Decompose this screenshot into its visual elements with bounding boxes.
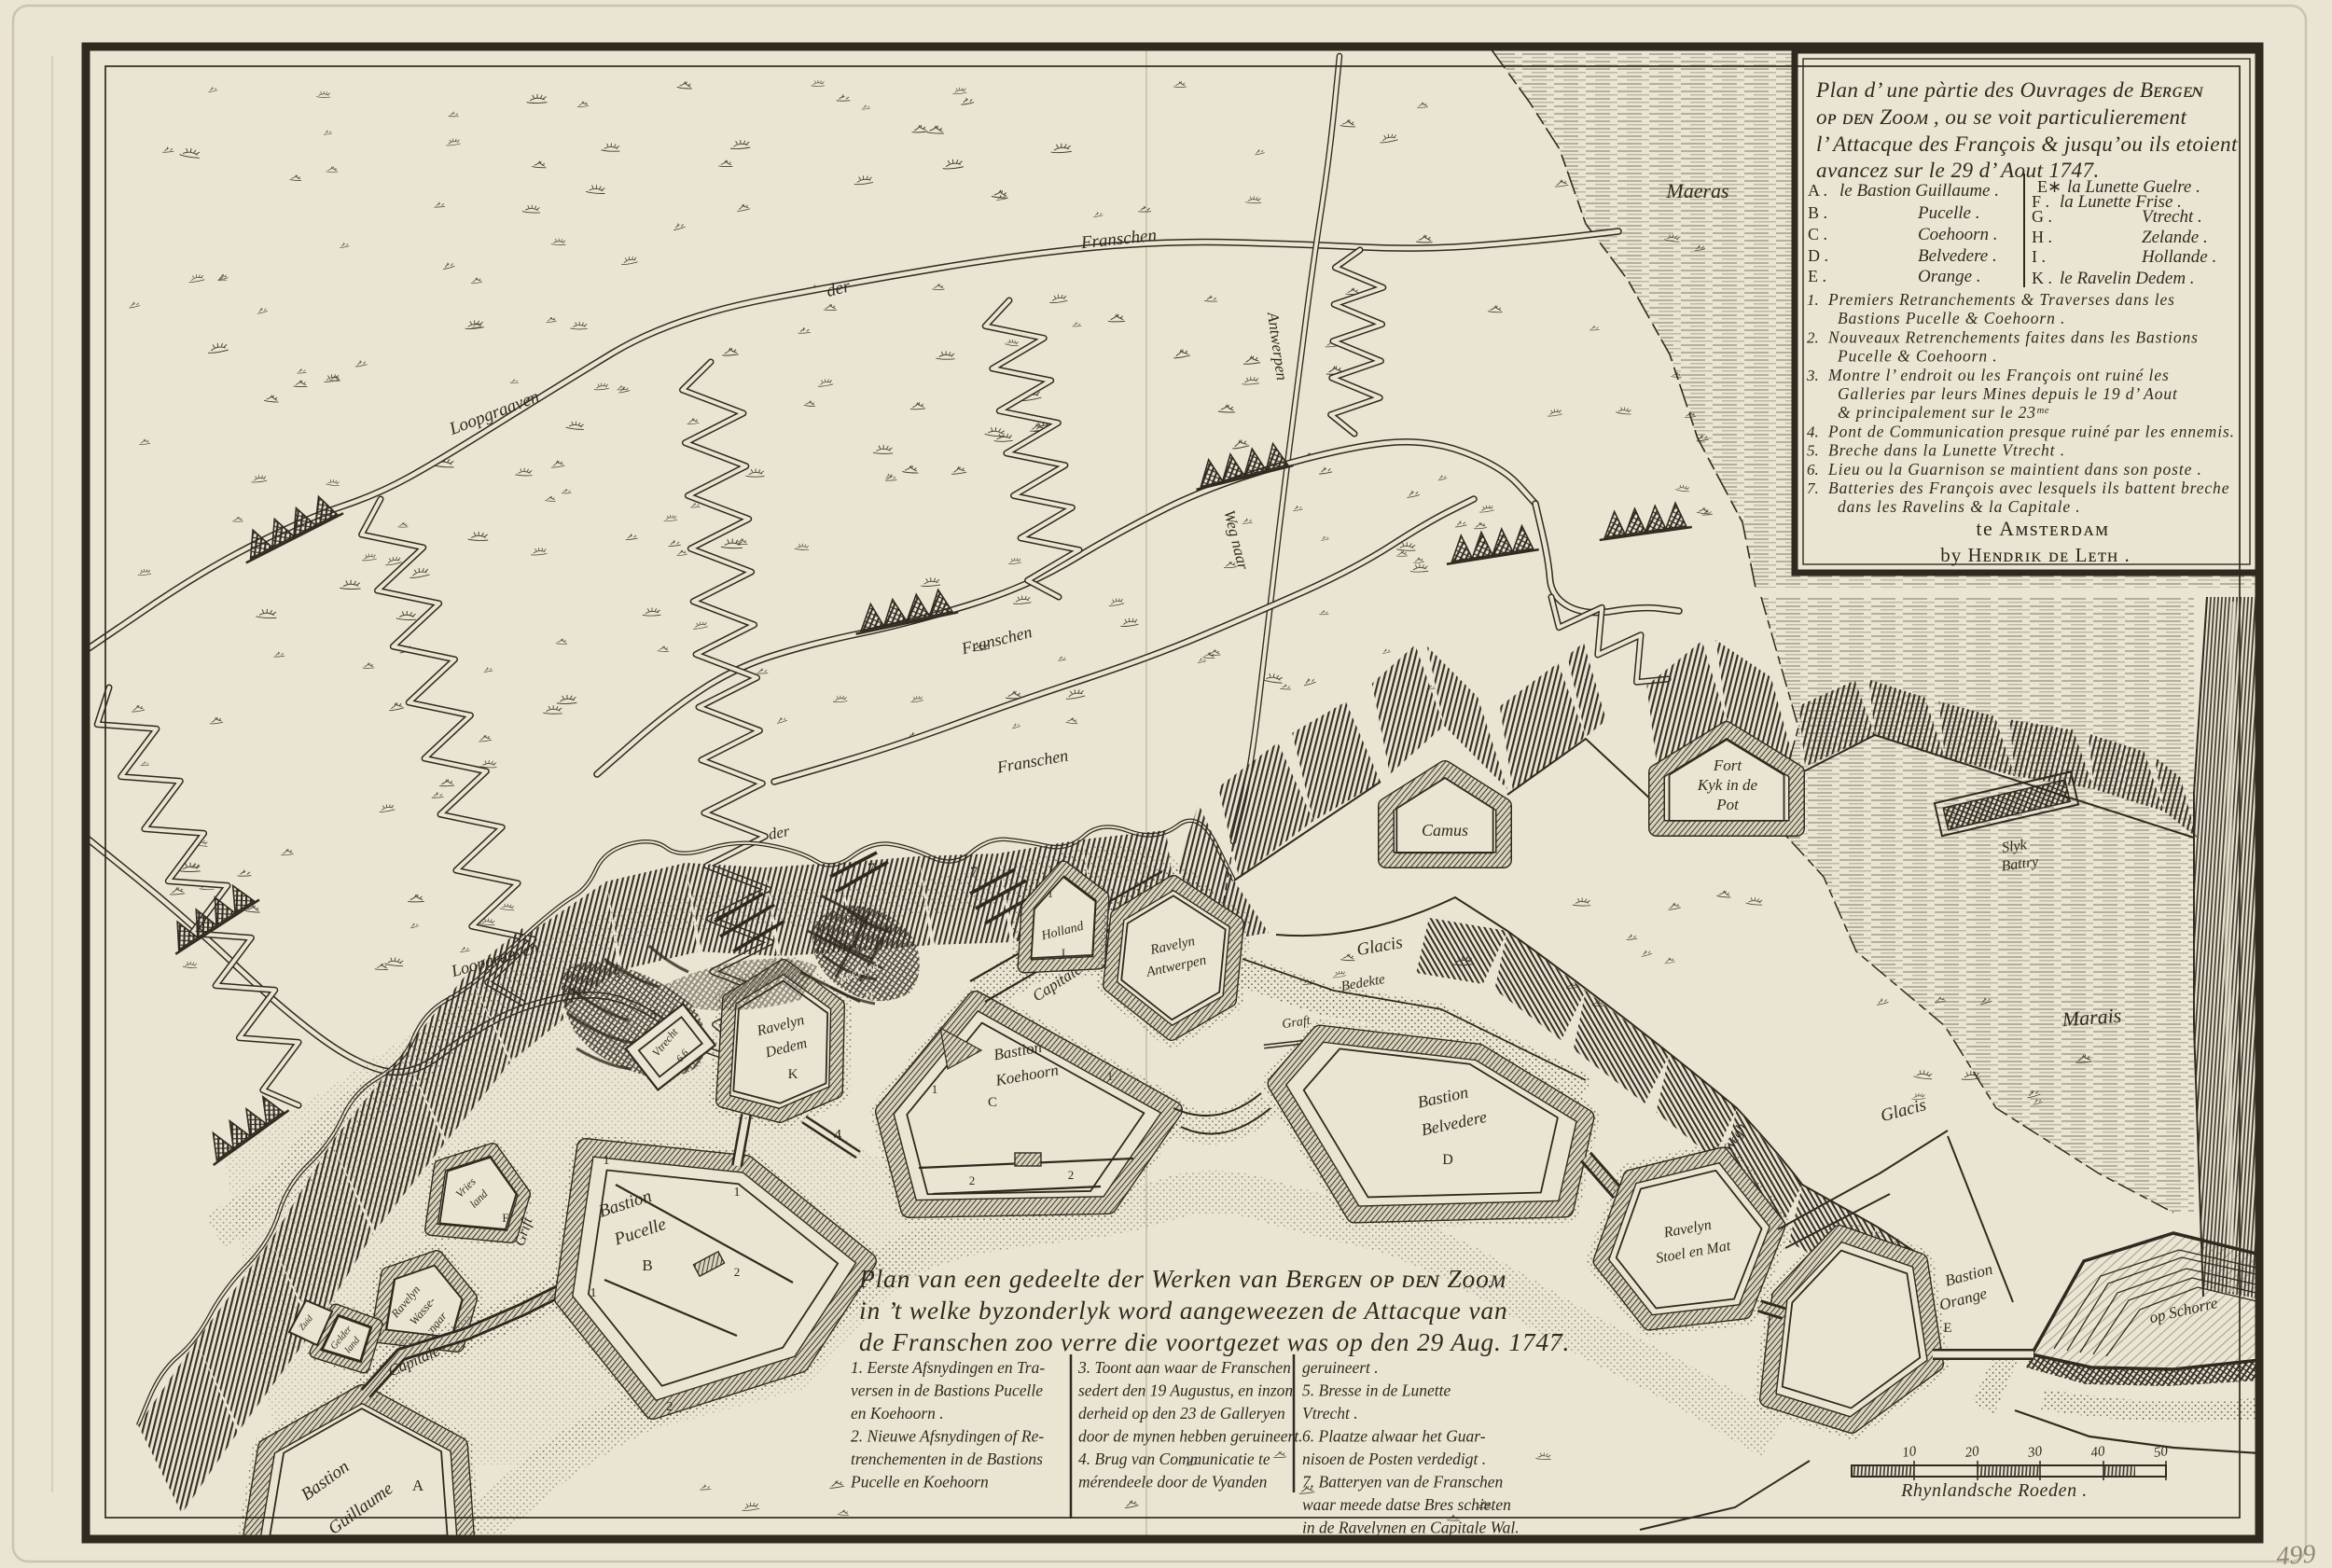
svg-text:10: 10 bbox=[1901, 1444, 1918, 1461]
svg-text:en Koehoorn .: en Koehoorn . bbox=[851, 1404, 944, 1422]
svg-text:Nouveaux Retrenchements faites: Nouveaux Retrenchements faites dans les … bbox=[1827, 327, 2199, 346]
svg-text:Galleries par leurs Mines depu: Galleries par leurs Mines depuis le 19 d… bbox=[1838, 384, 2178, 403]
svg-text:Vtrecht .: Vtrecht . bbox=[1302, 1404, 1358, 1422]
svg-text:6.: 6. bbox=[1807, 461, 1819, 479]
svg-text:Plan d’ une pàrtie des Ouvrage: Plan d’ une pàrtie des Ouvrages de Bᴇʀɢᴇ… bbox=[1815, 78, 2204, 103]
svg-text:Montre l’ endroit ou les Franç: Montre l’ endroit ou les François ont ru… bbox=[1827, 366, 2170, 384]
svg-text:F: F bbox=[502, 1211, 508, 1225]
svg-text:Premiers Retranchements & Trav: Premiers Retranchements & Traverses dans… bbox=[1827, 290, 2175, 309]
svg-text:sedert den 19 Augustus, en inz: sedert den 19 Augustus, en inzon bbox=[1078, 1381, 1293, 1400]
svg-text:2: 2 bbox=[667, 1400, 673, 1414]
svg-text:3. Toont aan waar de Franschen: 3. Toont aan waar de Franschen bbox=[1077, 1358, 1291, 1377]
svg-text:2: 2 bbox=[734, 1265, 741, 1279]
svg-text:A: A bbox=[412, 1477, 424, 1494]
svg-text:geruineert .: geruineert . bbox=[1302, 1358, 1379, 1377]
svg-text:Fort: Fort bbox=[1713, 756, 1743, 774]
svg-text:7. Batteryen van de Franschen: 7. Batteryen van de Franschen bbox=[1302, 1473, 1504, 1492]
svg-text:H .: H . bbox=[2032, 228, 2052, 246]
svg-text:Camus: Camus bbox=[1422, 821, 1468, 840]
svg-text:1: 1 bbox=[604, 1154, 610, 1168]
svg-text:4. Brug van Communicatie te: 4. Brug van Communicatie te bbox=[1078, 1450, 1270, 1468]
svg-text:Vtrecht .: Vtrecht . bbox=[2142, 207, 2202, 227]
svg-text:Orange .: Orange . bbox=[1918, 267, 1981, 286]
svg-text:20: 20 bbox=[1964, 1444, 1981, 1461]
svg-text:1. Eerste Afsnydingen en Tra-: 1. Eerste Afsnydingen en Tra- bbox=[851, 1358, 1045, 1377]
svg-text:Bastions Pucelle & Coehoorn .: Bastions Pucelle & Coehoorn . bbox=[1838, 309, 2065, 327]
svg-text:G .: G . bbox=[2032, 207, 2052, 226]
svg-text:mérendeele door de Vyanden: mérendeele door de Vyanden bbox=[1078, 1473, 1268, 1492]
svg-text:I: I bbox=[1062, 946, 1065, 960]
svg-text:6. Plaatze alwaar het Guar-: 6. Plaatze alwaar het Guar- bbox=[1302, 1427, 1486, 1446]
svg-text:Batteries des François avec le: Batteries des François avec lesquels ils… bbox=[1828, 479, 2229, 497]
svg-text:3: 3 bbox=[816, 926, 823, 940]
svg-text:derheid op den 23 de Galleryen: derheid op den 23 de Galleryen bbox=[1078, 1404, 1285, 1422]
svg-text:C: C bbox=[988, 1095, 997, 1110]
svg-text:le Bastion Guillaume .: le Bastion Guillaume . bbox=[1839, 181, 1999, 201]
svg-text:Coehoorn .: Coehoorn . bbox=[1918, 225, 1998, 244]
svg-text:4: 4 bbox=[834, 1126, 842, 1144]
svg-text:1: 1 bbox=[590, 1286, 597, 1300]
svg-text:Pucelle .: Pucelle . bbox=[1917, 203, 1979, 223]
svg-text:5.: 5. bbox=[1807, 442, 1819, 460]
svg-text:in ’t welke byzonderlyk word a: in ’t welke byzonderlyk word aangeweezen… bbox=[859, 1296, 1507, 1325]
svg-text:Rhynlandsche Roeden .: Rhynlandsche Roeden . bbox=[1900, 1480, 2088, 1501]
svg-text:D: D bbox=[1442, 1152, 1453, 1168]
svg-text:H: H bbox=[865, 989, 873, 1003]
svg-text:versen in de Bastions Pucelle: versen in de Bastions Pucelle bbox=[851, 1381, 1043, 1400]
svg-text:K .: K . bbox=[2032, 269, 2052, 287]
svg-text:7.: 7. bbox=[1807, 479, 1819, 497]
svg-text:by Hᴇɴᴅʀɪᴋ ᴅᴇ Lᴇᴛʜ .: by Hᴇɴᴅʀɪᴋ ᴅᴇ Lᴇᴛʜ . bbox=[1940, 544, 2131, 566]
svg-text:nisoen de Posten verdedigt .: nisoen de Posten verdedigt . bbox=[1302, 1450, 1486, 1468]
svg-text:C .: C . bbox=[1808, 225, 1827, 243]
svg-text:ᴏᴘ ᴅᴇɴ Zᴏᴏᴍ , ou se voit parti: ᴏᴘ ᴅᴇɴ Zᴏᴏᴍ , ou se voit particulieremen… bbox=[1816, 105, 2187, 130]
svg-text:D .: D . bbox=[1808, 246, 1828, 265]
svg-text:le Ravelin Dedem .: le Ravelin Dedem . bbox=[2060, 269, 2195, 288]
svg-text:B: B bbox=[642, 1256, 652, 1274]
svg-text:1: 1 bbox=[852, 937, 858, 951]
svg-text:door de mynen hebben geruineer: door de mynen hebben geruineert. bbox=[1078, 1427, 1303, 1446]
svg-text:I .: I . bbox=[2032, 247, 2046, 266]
svg-text:& principalement sur le 23ᵐᵉ: & principalement sur le 23ᵐᵉ bbox=[1838, 403, 2049, 422]
svg-text:3.: 3. bbox=[1806, 367, 1819, 384]
svg-text:50: 50 bbox=[2153, 1444, 2170, 1461]
svg-text:de Franschen zoo verre die voo: de Franschen zoo verre die voortgezet wa… bbox=[859, 1327, 1570, 1356]
svg-text:Pot: Pot bbox=[1715, 796, 1740, 813]
svg-text:E: E bbox=[1943, 1321, 1951, 1336]
svg-text:Pucelle en Koehoorn: Pucelle en Koehoorn bbox=[850, 1473, 989, 1492]
svg-text:30: 30 bbox=[2026, 1444, 2044, 1461]
svg-text:2: 2 bbox=[1068, 1168, 1075, 1182]
svg-text:2: 2 bbox=[969, 1173, 976, 1187]
svg-text:40: 40 bbox=[2090, 1444, 2107, 1461]
svg-text:l’ Attacque des François & jus: l’ Attacque des François & jusqu’ou ils … bbox=[1816, 132, 2238, 157]
svg-text:E .: E . bbox=[1808, 267, 1826, 285]
svg-text:A .: A . bbox=[1808, 181, 1827, 200]
svg-text:5. Bresse in de Lunette: 5. Bresse in de Lunette bbox=[1302, 1381, 1451, 1400]
svg-text:Marais: Marais bbox=[2061, 1004, 2122, 1031]
svg-text:1: 1 bbox=[1107, 1069, 1114, 1083]
svg-text:trenchementen in de Bastions: trenchementen in de Bastions bbox=[851, 1450, 1043, 1468]
svg-text:waar meede datse Bres schieten: waar meede datse Bres schieten bbox=[1302, 1495, 1511, 1514]
svg-text:1: 1 bbox=[734, 1186, 741, 1200]
svg-text:der: der bbox=[767, 822, 791, 843]
svg-text:Pont de Communication presque: Pont de Communication presque ruiné par … bbox=[1827, 422, 2235, 440]
svg-text:K: K bbox=[788, 1067, 798, 1082]
svg-text:2.: 2. bbox=[1807, 328, 1819, 346]
svg-text:1: 1 bbox=[1048, 887, 1053, 900]
svg-text:Hollande .: Hollande . bbox=[2141, 247, 2216, 267]
svg-text:5: 5 bbox=[650, 1008, 657, 1022]
svg-text:499: 499 bbox=[2275, 1540, 2316, 1568]
svg-text:4.: 4. bbox=[1807, 423, 1819, 440]
svg-text:te Aᴍsᴛᴇʀᴅᴀᴍ: te Aᴍsᴛᴇʀᴅᴀᴍ bbox=[1976, 517, 2109, 540]
svg-text:Zelande .: Zelande . bbox=[2142, 228, 2208, 247]
svg-text:7: 7 bbox=[970, 865, 978, 881]
svg-text:in de Ravelynen en Capitale Wa: in de Ravelynen en Capitale Wal. bbox=[1302, 1519, 1520, 1537]
svg-text:Breche dans la Lunette Vtrecht: Breche dans la Lunette Vtrecht . bbox=[1828, 441, 2065, 460]
svg-text:7: 7 bbox=[748, 891, 756, 907]
svg-text:7: 7 bbox=[868, 861, 875, 877]
svg-text:1.: 1. bbox=[1807, 291, 1819, 309]
svg-text:Belvedere .: Belvedere . bbox=[1918, 246, 1997, 266]
svg-text:2. Nieuwe Afsnydingen of Re-: 2. Nieuwe Afsnydingen of Re- bbox=[851, 1427, 1044, 1446]
svg-text:Lieu ou la Guarnison se mainti: Lieu ou la Guarnison se maintient dans s… bbox=[1827, 460, 2202, 479]
svg-text:dans les Ravelins & la Capital: dans les Ravelins & la Capitale . bbox=[1838, 497, 2081, 516]
svg-text:Kyk in de: Kyk in de bbox=[1697, 776, 1758, 794]
svg-text:3: 3 bbox=[615, 971, 621, 985]
svg-text:1: 1 bbox=[932, 1082, 938, 1096]
svg-text:Maeras: Maeras bbox=[1665, 179, 1728, 202]
svg-text:Plan van een gedeelte der Werk: Plan van een gedeelte der Werken van Bᴇʀ… bbox=[858, 1264, 1506, 1293]
svg-text:B .: B . bbox=[1808, 203, 1827, 222]
svg-text:Pucelle & Coehoorn .: Pucelle & Coehoorn . bbox=[1837, 347, 1998, 366]
